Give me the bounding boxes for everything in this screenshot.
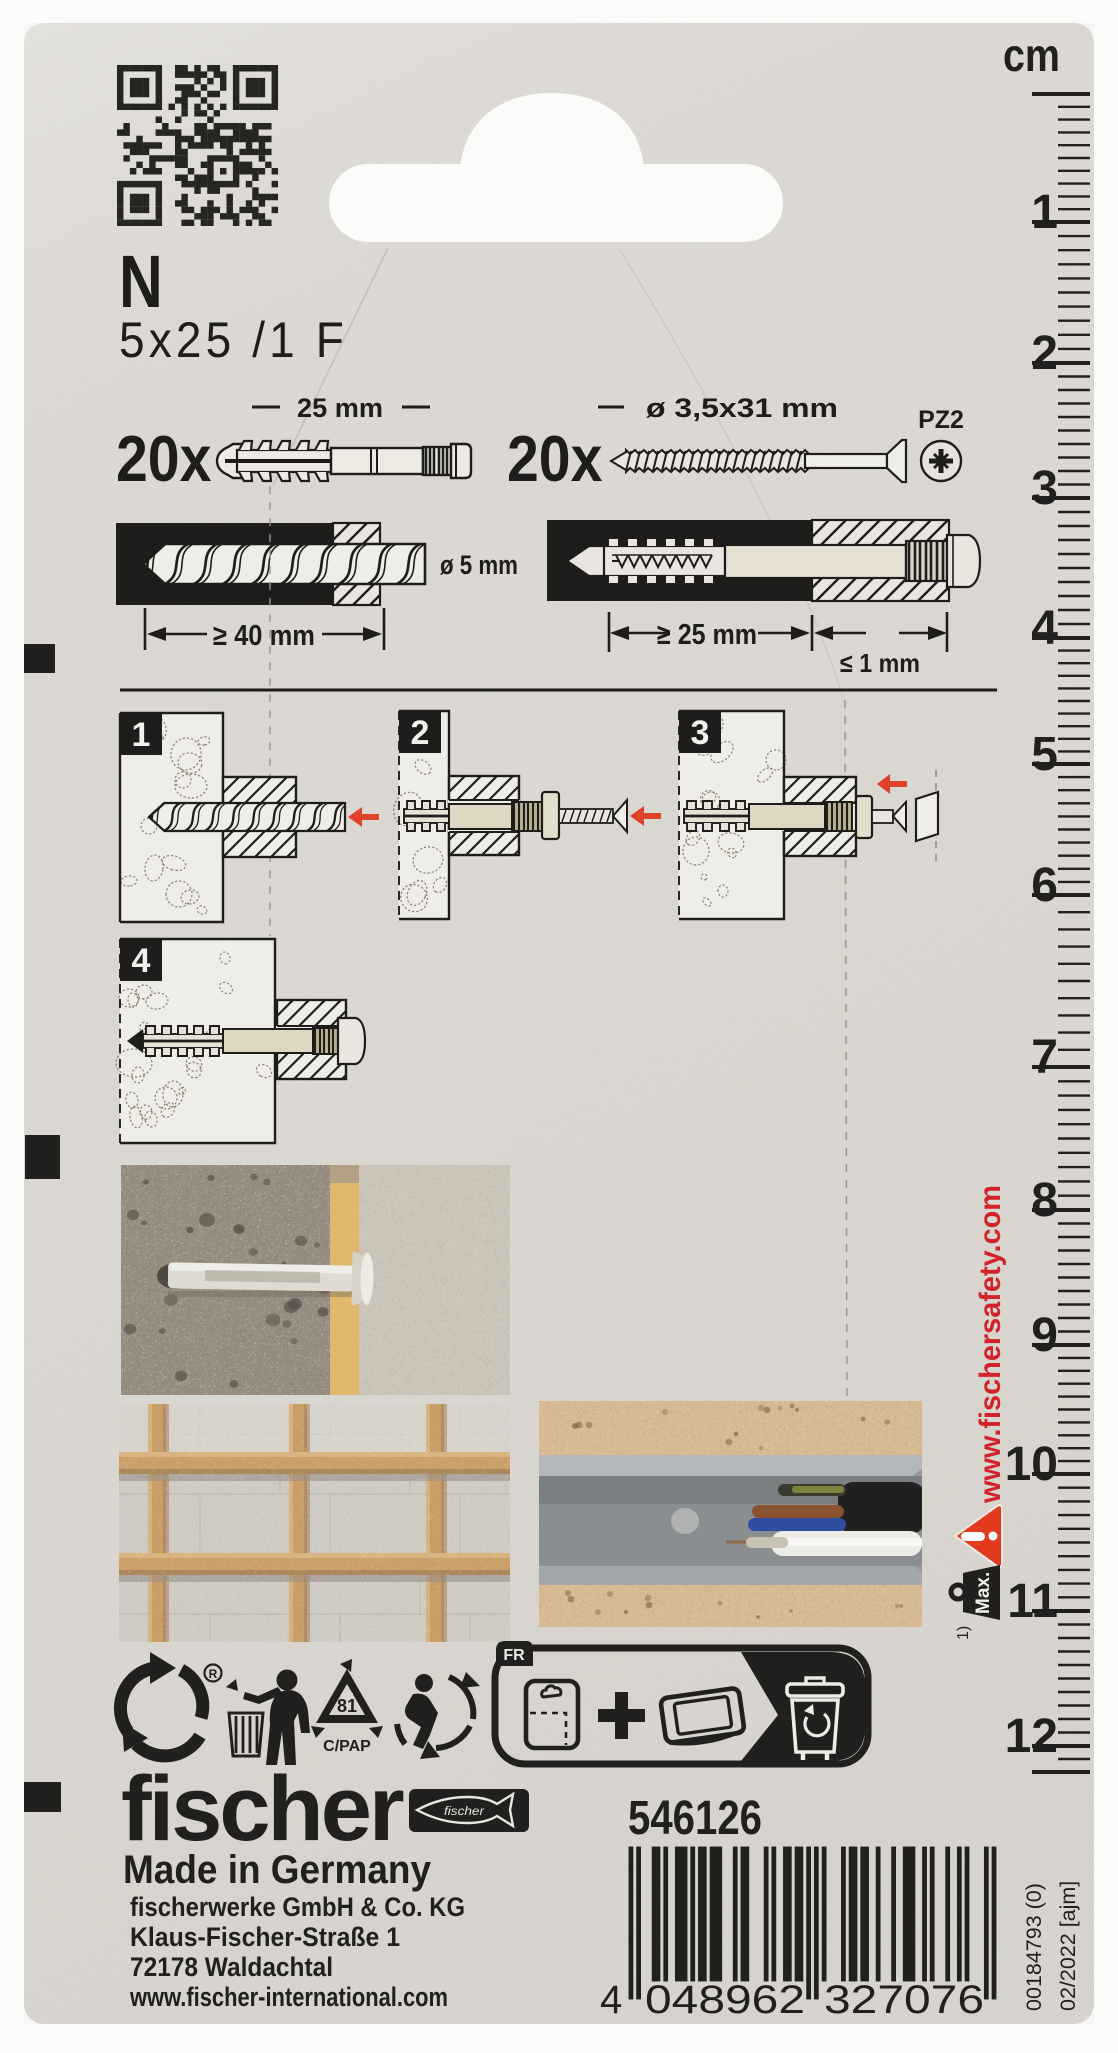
svg-text:≥ 25 mm: ≥ 25 mm [657,619,757,651]
svg-text:Made in Germany: Made in Germany [123,1848,432,1892]
svg-text:02/2022 [ajm]: 02/2022 [ajm] [1056,1881,1080,2011]
svg-text:20x: 20x [116,423,211,495]
svg-text:2: 2 [1031,327,1058,380]
svg-text:ø 3,5x31 mm: ø 3,5x31 mm [646,393,838,423]
svg-text:≥ 40 mm: ≥ 40 mm [213,620,315,652]
svg-text:www.fischersafety.com: www.fischersafety.com [974,1185,1007,1504]
svg-text:20x: 20x [507,423,602,495]
svg-text:048962: 048962 [645,1978,805,2022]
svg-text:7: 7 [1031,1031,1058,1084]
svg-text:N: N [119,241,163,323]
svg-text:9: 9 [1031,1309,1058,1362]
svg-text:C/PAP: C/PAP [323,1738,371,1755]
svg-text:4: 4 [132,942,151,980]
svg-text:327076: 327076 [824,1978,984,2022]
svg-text:8: 8 [1031,1174,1058,1227]
svg-text:fischer: fischer [121,1758,404,1860]
svg-text:5: 5 [1031,728,1058,781]
svg-text:4: 4 [1031,602,1058,655]
svg-text:cm: cm [1003,29,1060,81]
svg-text:5x25 /1 F: 5x25 /1 F [119,313,348,368]
svg-text:3: 3 [1031,462,1058,515]
svg-text:1): 1) [955,1626,972,1640]
svg-text:PZ2: PZ2 [918,406,964,434]
svg-text:R: R [209,1667,218,1681]
svg-text:00184793 (0): 00184793 (0) [1022,1883,1046,2011]
svg-text:72178 Waldachtal: 72178 Waldachtal [130,1952,333,1982]
svg-text:ø 5 mm: ø 5 mm [440,550,518,580]
svg-text:Klaus-Fischer-Straße 1: Klaus-Fischer-Straße 1 [130,1922,400,1952]
svg-text:1: 1 [1031,186,1058,239]
svg-text:10: 10 [1005,1438,1058,1491]
svg-text:FR: FR [503,1647,525,1664]
svg-text:≤ 1 mm: ≤ 1 mm [840,648,920,678]
svg-text:fischer: fischer [444,1804,485,1818]
svg-text:81: 81 [337,1696,357,1716]
svg-text:25 mm: 25 mm [297,393,383,423]
svg-text:3: 3 [691,714,710,752]
svg-text:Max.: Max. [973,1572,994,1614]
svg-text:4: 4 [600,1978,622,2022]
svg-text:1: 1 [132,716,151,754]
svg-text:12: 12 [1005,1710,1058,1763]
svg-text:546126: 546126 [628,1792,762,1845]
svg-text:www.fischer-international.com: www.fischer-international.com [129,1982,448,2012]
svg-text:2: 2 [411,714,430,752]
svg-text:6: 6 [1031,859,1058,912]
svg-text:fischerwerke GmbH & Co. KG: fischerwerke GmbH & Co. KG [130,1892,465,1922]
svg-text:11: 11 [1007,1575,1058,1628]
